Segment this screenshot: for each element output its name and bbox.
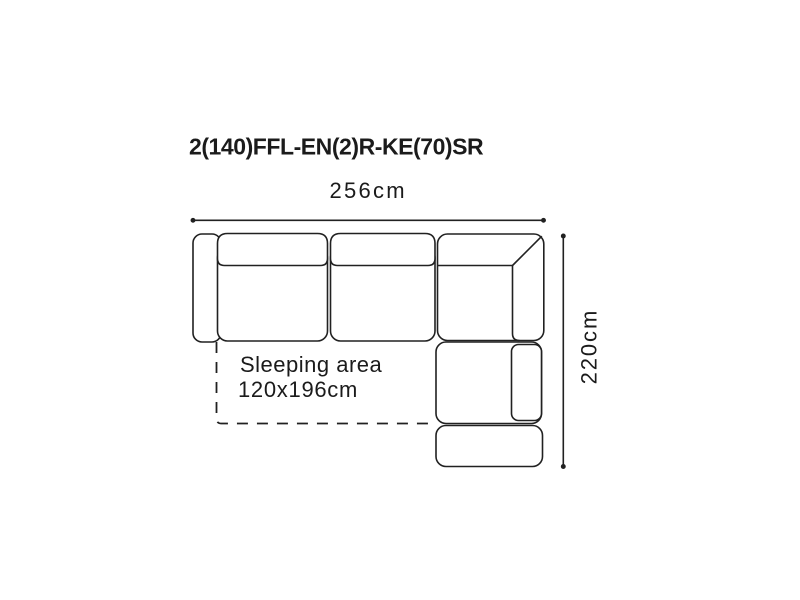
svg-text:120x196cm: 120x196cm: [238, 377, 358, 402]
svg-text:256cm: 256cm: [330, 178, 407, 203]
svg-text:2(140)FFL-EN(2)R-KE(70)SR: 2(140)FFL-EN(2)R-KE(70)SR: [189, 133, 484, 159]
svg-text:220cm: 220cm: [576, 309, 601, 385]
svg-text:Sleeping area: Sleeping area: [240, 352, 383, 377]
